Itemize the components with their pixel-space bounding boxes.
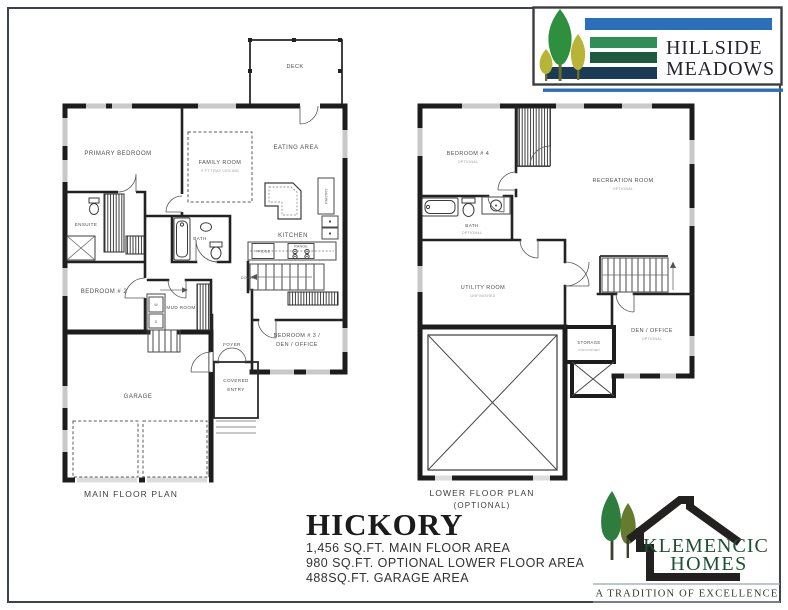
label-covered-entry-1: COVERED [223, 378, 249, 383]
label-lower-bath-note: OPTIONAL [462, 231, 483, 235]
label-range: RANGE [294, 245, 308, 249]
spec-lower-floor: 980 SQ.FT. OPTIONAL LOWER FLOOR AREA [306, 556, 584, 571]
stripe-green [590, 37, 657, 48]
label-garage: GARAGE [124, 394, 153, 400]
label-dryer: D [155, 320, 158, 324]
label-storage: STORAGE [577, 340, 600, 345]
lower-door-arcs [488, 146, 634, 312]
stripe-blue [585, 18, 772, 30]
label-deck: DECK [286, 64, 303, 70]
label-pantry: PANTRY [325, 188, 329, 204]
bedroom4-closet-hatch [518, 108, 550, 166]
label-covered-entry-2: ENTRY [227, 387, 245, 392]
label-bedroom4-note: OPTIONAL [458, 160, 479, 164]
label-ensuite: ENSUITE [75, 222, 98, 227]
label-storage-note: UNFINISHED [578, 348, 600, 352]
kitchen-island [265, 183, 301, 219]
deck-outline [250, 40, 342, 106]
hillside-wordmark-2: MEADOWS [666, 58, 775, 80]
lower-bath-fixtures [422, 197, 510, 217]
shaft-x [572, 362, 614, 396]
stairs-down [250, 264, 324, 290]
lower-stairs [602, 258, 676, 292]
garage-bay-1 [73, 421, 138, 477]
lower-floor-caption-1: LOWER FLOOR PLAN [430, 488, 535, 498]
label-recreation-room-note: OPTIONAL [613, 187, 634, 191]
mudroom-closet-hatch [197, 284, 210, 330]
spec-main-floor: 1,456 SQ.FT. MAIN FLOOR AREA [306, 541, 584, 556]
lower-storage-walls [565, 327, 614, 396]
klemencic-homes-logo: KLEMENCIC HOMES A TRADITION OF EXCELLENC… [590, 486, 786, 610]
main-floor-plan: DECK PRIMARY BEDROOM FAMILY ROOM 9 FT TR… [65, 38, 345, 499]
label-eating-area: EATING AREA [273, 145, 318, 151]
ensuite-fixtures [67, 198, 99, 260]
label-washer: W [154, 303, 158, 307]
label-family-room: FAMILY ROOM [199, 160, 242, 166]
walkin-closet-hatch [104, 194, 124, 252]
lower-floor-plan: BEDROOM # 4 OPTIONAL RECREATION ROOM OPT… [420, 106, 692, 510]
label-family-room-note: 9 FT TRAY CEILING [201, 169, 239, 173]
label-bedroom3-2: DEN / OFFICE [276, 342, 318, 348]
label-lower-bath: BATH [465, 223, 479, 228]
label-utility-room: UTILITY ROOM [461, 285, 505, 291]
plan-name: HICKORY [306, 509, 584, 541]
mudroom-bench-arrow [160, 287, 188, 292]
washer-dryer-stack [147, 294, 165, 330]
label-mud-room: MUD ROOM [166, 305, 195, 310]
lower-interior-walls [420, 106, 692, 327]
linen-closet-hatch [126, 236, 144, 254]
spec-garage: 488SQ.FT. GARAGE AREA [306, 571, 584, 586]
label-fridge: FRIDGE [256, 250, 271, 254]
label-bedroom2: BEDROOM # 2 [81, 289, 128, 295]
garage-bay-2 [143, 421, 207, 477]
toilet-tank [210, 242, 222, 247]
label-recreation-room: RECREATION ROOM [592, 178, 653, 184]
label-den-office: DEN / OFFICE [631, 328, 673, 334]
hillside-wordmark-1: HILLSIDE [666, 37, 762, 59]
label-bath: BATH [193, 236, 207, 241]
lower-toilet [463, 204, 474, 217]
klemencic-tagline: A TRADITION OF EXCELLENCE [596, 589, 779, 600]
label-den-office-note: OPTIONAL [642, 337, 663, 341]
label-kitchen: KITCHEN [278, 233, 308, 239]
unexcavated-area [428, 335, 557, 470]
stairs-to-garage [148, 330, 180, 352]
label-stairs-down: DOWN [241, 276, 253, 280]
family-room-tray-ceiling [188, 132, 252, 202]
main-floor-caption: MAIN FLOOR PLAN [84, 489, 178, 499]
plan-title-block: HICKORY 1,456 SQ.FT. MAIN FLOOR AREA 980… [306, 509, 584, 586]
klemencic-wordmark-2: HOMES [670, 553, 748, 575]
klemencic-trees-icon [601, 491, 636, 560]
entry-steps [216, 421, 256, 433]
hillside-meadows-logo: HILLSIDE MEADOWS [532, 6, 784, 99]
toilet [211, 247, 221, 259]
bath-sink [201, 223, 212, 231]
stripe-dark-green [590, 52, 657, 63]
stripe-navy [545, 67, 657, 79]
label-bedroom3-1: BEDROOM # 3 / [274, 333, 321, 339]
floor-plan-sheet: DECK PRIMARY BEDROOM FAMILY ROOM 9 FT TR… [0, 0, 788, 610]
lower-toilet-tank [462, 198, 475, 203]
label-primary-bedroom: PRIMARY BEDROOM [84, 151, 151, 157]
label-foyer: FOYER [223, 342, 241, 347]
hall-closet-hatch [288, 292, 338, 305]
label-utility-room-note: UNFINISHED [471, 294, 496, 298]
label-bedroom4: BEDROOM # 4 [447, 151, 490, 157]
logo-underline [543, 89, 783, 92]
